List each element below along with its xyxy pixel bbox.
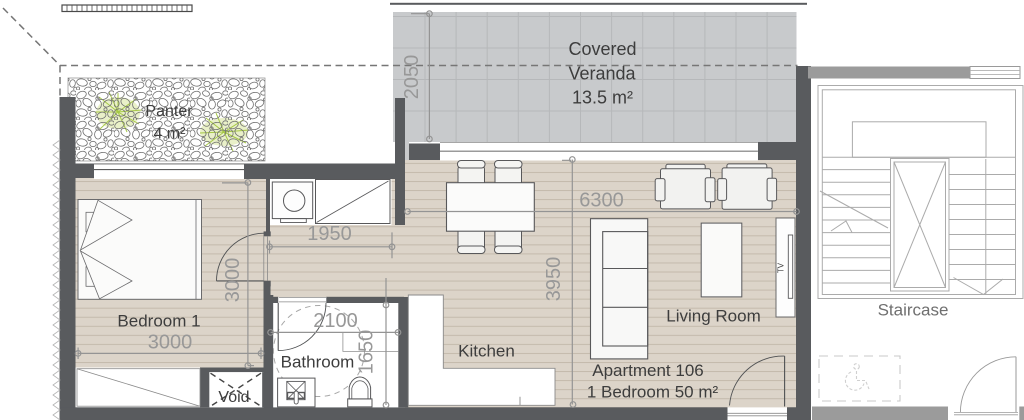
svg-text:1 Bedroom 50 m²: 1 Bedroom 50 m²	[587, 383, 719, 402]
svg-text:Living Room: Living Room	[666, 307, 761, 326]
svg-text:1650: 1650	[356, 330, 378, 375]
svg-text:Veranda: Veranda	[568, 64, 636, 84]
svg-text:3950: 3950	[543, 257, 565, 302]
svg-text:Panter: Panter	[145, 103, 193, 120]
svg-text:4 m²: 4 m²	[154, 126, 187, 143]
svg-text:Bathroom: Bathroom	[281, 353, 355, 372]
svg-text:TV: TV	[777, 262, 786, 273]
svg-text:13.5 m²: 13.5 m²	[572, 88, 633, 108]
svg-text:Covered: Covered	[568, 39, 636, 59]
svg-text:Bedroom 1: Bedroom 1	[117, 312, 200, 331]
svg-text:3000: 3000	[222, 258, 244, 303]
svg-text:2050: 2050	[401, 55, 423, 100]
svg-text:2100: 2100	[313, 310, 358, 332]
svg-text:6300: 6300	[579, 190, 624, 212]
svg-text:Kitchen: Kitchen	[458, 342, 515, 361]
svg-text:1950: 1950	[307, 223, 352, 245]
svg-text:Staircase: Staircase	[878, 301, 949, 320]
svg-text:Void: Void	[218, 389, 249, 406]
svg-text:3000: 3000	[148, 332, 193, 354]
svg-text:Apartment 106: Apartment 106	[592, 361, 704, 380]
